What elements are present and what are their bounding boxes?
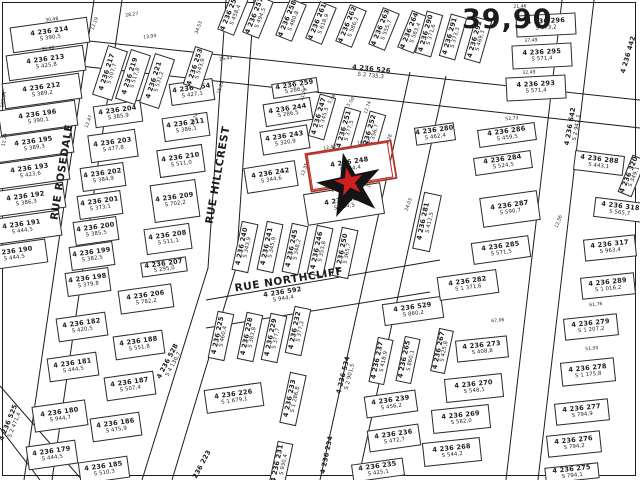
- scale-label: 39,90: [462, 4, 552, 35]
- highlight-overlay: [0, 0, 640, 480]
- cadastral-map: 4 236 214S 390,54 236 213S 425,84 236 21…: [0, 0, 640, 480]
- star-marker-icon[interactable]: [311, 146, 387, 220]
